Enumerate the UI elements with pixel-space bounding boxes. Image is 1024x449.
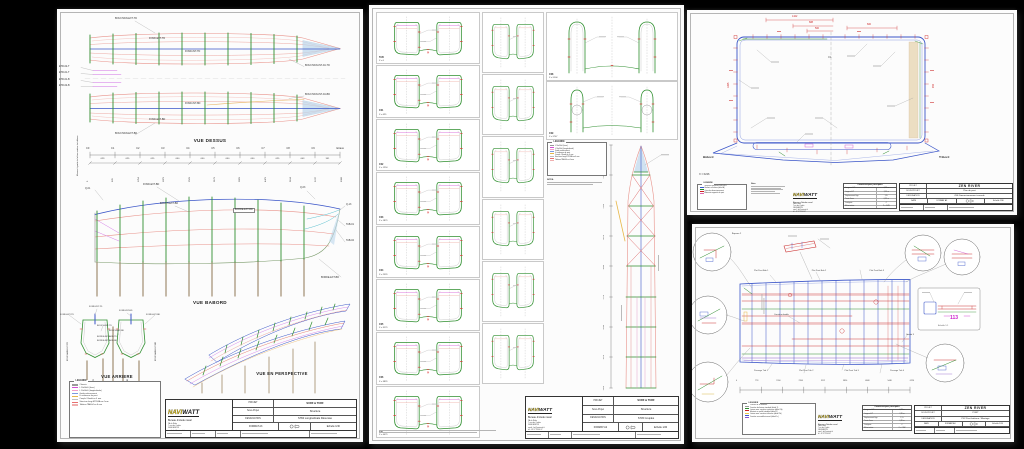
station-label: C9 xyxy=(311,148,314,151)
field-sousprojet-label: SOUS-PROJET xyxy=(900,189,927,193)
centerline-symbol: CL xyxy=(828,56,832,59)
segment-value: 643 xyxy=(290,158,315,160)
legend-row: Tableau TAB-04 en 6 mm xyxy=(70,404,160,407)
legend-color-swatch xyxy=(745,415,750,416)
cumulative-value: 5104 xyxy=(290,166,292,182)
section-name: C01 xyxy=(379,110,383,112)
section-panels-middle xyxy=(482,12,544,385)
view-title-dessus: VUE DESSUS xyxy=(87,138,333,143)
title-block: PROJETZEN RIVER SOUS-PROJETPlan de pont … xyxy=(899,183,1013,211)
caract-value: 2 × 4 kW xyxy=(893,428,911,431)
title-block: NAVIWATT Bureau d'étude naval ZA du Rédo… xyxy=(525,396,679,439)
field-format: FORMAT A3 xyxy=(233,423,279,430)
cumulative-values: 0629125418792529317938294479510457476098 xyxy=(87,166,343,182)
legend-color-swatch xyxy=(72,390,78,391)
section-label: BORDE-INT-ARR-BD xyxy=(97,340,117,342)
segment-values: 629625625650650650650625643351 xyxy=(90,158,340,160)
station-label: C3 xyxy=(161,148,164,151)
naviwatt-block: NAVIWATT Bureau d'étude naval ZA du Rédo… xyxy=(793,183,837,214)
deck-scale-values: 07781556233431123890466854466226 xyxy=(736,381,914,383)
legend-title: LEGENDE xyxy=(552,141,566,143)
caract-label: Largeur H.T xyxy=(863,414,893,417)
babord-label: Bâbord xyxy=(703,156,714,159)
ruler-value: 4479 xyxy=(603,235,605,239)
hull-line-label: FOND-EXT-BD xyxy=(143,184,159,186)
sheet-surf-turf-couples: TAB X = 0 xyxy=(369,5,684,444)
logo-navi: NAVI xyxy=(528,407,539,412)
section-panel: C02 X = 1254 xyxy=(376,119,480,171)
section-name: C09 xyxy=(549,133,553,135)
caract-label: Motorisation xyxy=(844,206,877,209)
hull-line-label: FOND-INT-TD xyxy=(185,51,200,53)
sheet-surf-turf-longitudinale: BOUCHAIN-EXT-TD FOND-EXT-TD FOND-INT-TD … xyxy=(57,9,363,442)
legend-title: LEGENDE xyxy=(74,380,88,382)
section-panel: C03 X = 1879 xyxy=(376,172,480,224)
field-echelle: Echelle 1/30 xyxy=(985,199,1012,203)
caracteristiques-table: Caractéristiques principales Longueur H.… xyxy=(843,183,897,209)
section-drawing xyxy=(377,120,479,170)
field-date-label: DATE xyxy=(915,422,939,426)
legend-color-swatch xyxy=(72,402,78,403)
cumulative-value: 3179 xyxy=(214,166,216,182)
segment-value: 650 xyxy=(240,158,265,160)
legend-color-swatch xyxy=(550,147,555,148)
field-sousprojet-value: Structure xyxy=(274,408,356,415)
deck-plate-label: Plat Pont Bab 1 xyxy=(754,270,768,272)
legend-row-label: Cornière ou modèle inversé (détail 1c) xyxy=(750,417,779,419)
dimension-value: 940 xyxy=(933,76,935,88)
logo-watt: WATT xyxy=(182,410,199,416)
field-sousprojet-label: SOUS-PROJET xyxy=(915,411,942,415)
deck-plate-labels-bottom: Passage Trib 1Plat Pont Trib 2Plat Pont … xyxy=(754,370,904,372)
naviwatt-block: NAVIWATT Bureau d'étude naval ZA du Rédo… xyxy=(526,397,583,431)
hull-line-label: FOND-INT-BD xyxy=(185,103,200,105)
legend-couples: LEGENDE Chassis L 50x50x5 (lisse) L 50x5… xyxy=(547,142,607,176)
deck-plate-label: Passage Trib 1 xyxy=(754,370,768,372)
section-drawing xyxy=(377,280,479,330)
section-label: BOUCHAIN-EXT-BD xyxy=(155,325,157,361)
station-label: C6 xyxy=(236,148,239,151)
segment-value: 650 xyxy=(165,158,190,160)
projection-icon xyxy=(963,422,987,426)
caract-value: 0,35 m xyxy=(893,421,911,424)
field-echelle: Echelle 1/20 xyxy=(643,423,678,431)
title-block: PROJETZEN RIVER SOUS-PROJETPONT DESIGNAT… xyxy=(914,405,1010,434)
naviwatt-logo: NAVIWATT xyxy=(818,415,842,421)
section-drawing xyxy=(483,262,543,321)
segment-value: 625 xyxy=(265,158,290,160)
ruler-value: 5104 xyxy=(603,204,605,208)
field-projet-value: ZEN RIVER xyxy=(942,406,1009,410)
drawing-sheets-canvas: BOUCHAIN-EXT-TD FOND-EXT-TD FOND-INT-TD … xyxy=(0,0,1024,449)
sheet-zen-river-plan-de-pont: 1422 688 500 600 1265 940 CL Bâbord Trib… xyxy=(687,10,1017,215)
caract-value: 2,55 m xyxy=(893,414,911,417)
legend-color-swatch xyxy=(550,149,555,150)
hull-line-label: FOND-EXT-TD xyxy=(149,38,165,40)
field-projet-value: SURF & TURF xyxy=(614,397,678,405)
section-drawing xyxy=(483,13,543,72)
section-panels-left: TAB X = 0 xyxy=(376,12,480,439)
legend-color-swatch xyxy=(550,158,555,159)
tribord-label: Tribord xyxy=(939,156,949,159)
field-projet-value: SURF & TURF xyxy=(274,400,356,407)
stringer-label: ETR-01-B xyxy=(59,79,70,81)
address-lines: ZA du Rédo7 rue des Cadets56640 ARZONema… xyxy=(818,426,858,436)
section-label: FOND-EXT-TD xyxy=(60,314,74,316)
section-panel-c08: C08 X = 5104 xyxy=(546,12,678,81)
cumulative-value: 6098 xyxy=(341,166,343,182)
legend-color-swatch xyxy=(550,153,555,154)
view-title-perspective: VUE EN PERSPECTIVE xyxy=(207,371,357,376)
section-panel xyxy=(482,12,544,73)
legend-row-label: Structure longi ETR-BA en 4 mm xyxy=(80,401,109,403)
cumulative-value: 1254 xyxy=(138,166,140,182)
equerre-label: Équerre 2 xyxy=(732,233,741,235)
field-sousprojet-value: Structure xyxy=(614,406,678,414)
ruler-value: 1879 xyxy=(603,355,605,359)
logo-watt: WATT xyxy=(804,192,817,197)
revision-strip xyxy=(915,427,1009,433)
field-echelle: Echelle 1/24 xyxy=(986,422,1009,426)
section-station: X = 629 xyxy=(379,114,386,116)
field-designation-label: DESIGNATION xyxy=(900,194,927,198)
ruler-value: 1254 xyxy=(603,386,605,390)
corniere-label: Cornière double xyxy=(774,314,789,316)
logo-navi: NAVI xyxy=(818,414,829,419)
transom-label: TAB-01 xyxy=(346,224,354,226)
nota-block: Nota xyxy=(751,183,785,194)
stringer-label: ETR-02-B xyxy=(59,85,70,87)
caract-value: 2,55 m xyxy=(877,192,896,195)
field-format: FORMAT A3 xyxy=(939,422,963,426)
section-name: C06 xyxy=(379,377,383,379)
legend-rows: Chassis L 50x50x5 (lisse) L 50x50x5 (lon… xyxy=(70,384,160,407)
section-drawing xyxy=(483,75,543,134)
field-projet-label: PROJET xyxy=(233,400,274,407)
hull-line-label: FOND-EXT-BD xyxy=(149,119,165,121)
caracteristiques-row: Motorisation 2 × 4 kW xyxy=(863,428,911,431)
field-projet-label: PROJET xyxy=(583,397,614,405)
field-format: FORMAT A2 xyxy=(583,423,619,431)
caracteristiques-row: Motorisation 2 × 4 kW xyxy=(844,206,896,209)
legend-color-swatch xyxy=(550,145,555,146)
section-station: X = 3179 xyxy=(379,327,387,329)
legend-row-label: Éléments rapportés du pont xyxy=(705,193,725,195)
cumulative-value: 1879 xyxy=(163,166,165,182)
section-label: BOUCH-INT-BD xyxy=(109,330,124,332)
section-name: C03 xyxy=(379,217,383,219)
legend-color-swatch xyxy=(700,191,704,192)
legend-color-swatch xyxy=(700,189,704,190)
bureau-label: Bureau d'étude naval xyxy=(168,420,230,423)
ruler-value: 2529 xyxy=(603,325,605,329)
section-station: X = 1254 xyxy=(379,167,387,169)
section-panel xyxy=(482,323,544,384)
station-reference: X = 6226 xyxy=(699,174,709,177)
section-station: X = 5747 xyxy=(549,136,557,138)
legend-row: Tableau TAB-04 en 6 mm xyxy=(548,159,606,161)
legend-pont: LEGENDE Chassis de la structure Cornière… xyxy=(742,403,816,435)
cumulative-value: 5747 xyxy=(315,166,317,182)
cumulative-value: 629 xyxy=(112,166,114,182)
deck-plate-labels-top: Plat Pont Bab 1Plat Pont Bab 2Plat Pont … xyxy=(754,270,884,272)
section-station: X = 1879 xyxy=(379,220,387,222)
naviwatt-block: NAVIWATT Bureau d'étude naval ZA du Rédo… xyxy=(818,405,858,436)
title-block: NAVIWATT Bureau d'étude naval ZA du Rédo… xyxy=(165,399,357,438)
legend-row-label: Tableau TAB-04 en 6 mm xyxy=(80,404,103,406)
legend-row-label: Tableau TAB-04 en 6 mm xyxy=(555,160,574,162)
caracteristiques-rows: Longueur H.T 6,23 m Largeur H.T 2,55 m D… xyxy=(863,410,911,430)
transom-label: TAB-02 xyxy=(346,240,354,242)
legend-row: Cornière ou modèle inversé (détail 1c) xyxy=(743,416,815,418)
dimension-value: 600 xyxy=(867,24,871,26)
stringer-label: ETR-02-T xyxy=(59,66,70,68)
section-drawing xyxy=(547,82,677,139)
ruler-value: 3179 xyxy=(603,295,605,299)
station-label: C5 xyxy=(211,148,214,151)
section-drawing xyxy=(547,13,677,80)
legend-rows: Structure aluminium 5083 H111 Renforts e… xyxy=(698,186,746,195)
projection-icon xyxy=(279,423,310,430)
dimension-value: 500 xyxy=(815,28,819,30)
section-panel: C04 X = 2529 xyxy=(376,226,480,278)
section-label: FOND-INT-BD xyxy=(119,310,132,312)
scale-value: 3890 xyxy=(843,381,847,383)
cumulative-value: 0 xyxy=(87,166,89,182)
section-drawing xyxy=(377,66,479,116)
nota-title: NOTA : xyxy=(547,179,605,181)
section-panel xyxy=(482,261,544,322)
field-designation-label: DESIGNATION xyxy=(233,416,274,423)
cumulative-value: 4479 xyxy=(265,166,267,182)
dimension-value: 1422 xyxy=(792,16,797,18)
naviwatt-logo: NAVIWATT xyxy=(168,410,199,417)
section-panel-c09: C09 X = 5747 xyxy=(546,81,678,140)
legend-color-swatch xyxy=(745,417,750,418)
section-station: X = 0 xyxy=(379,60,384,62)
logo-watt: WATT xyxy=(539,407,552,412)
section-drawing xyxy=(483,200,543,259)
revision-strip xyxy=(900,204,1012,210)
address-line: tél : 02 97 53 44 67 xyxy=(818,434,858,436)
station-label: C1 xyxy=(111,148,114,151)
legend-color-swatch xyxy=(72,393,78,394)
scale-axis-note: Mesure à partir de la face arrière du ta… xyxy=(77,150,79,176)
section-drawing xyxy=(483,137,543,196)
revision-strip xyxy=(526,431,678,438)
legend-color-swatch xyxy=(745,413,750,414)
section-drawing xyxy=(377,333,479,383)
section-drawing xyxy=(483,324,543,383)
segment-value: 625 xyxy=(140,158,165,160)
goulot-label: Goulot 3 xyxy=(906,334,914,336)
dimension-value: 688 xyxy=(809,22,813,24)
hull-line-label: BORDE-EXT-BD xyxy=(233,208,255,213)
naviwatt-block: NAVIWATT Bureau d'étude naval ZA du Rédo… xyxy=(166,400,233,430)
section-station: X = 2529 xyxy=(379,274,387,276)
legend-color-swatch xyxy=(700,187,704,188)
field-designation-label: DESIGNATION xyxy=(915,417,942,421)
address-lines: ZA du Rédo7 rue des Cadets56640 ARZONema… xyxy=(793,204,837,214)
legend-color-swatch xyxy=(72,384,78,385)
field-designation-value: P02 Pont Intérieur / Montage xyxy=(942,417,1009,421)
caract-value: 0,35 m xyxy=(877,199,896,202)
section-drawing xyxy=(377,227,479,277)
field-sousprojet-value: PONT xyxy=(942,411,1009,415)
deck-plate-label: Plat Pont Trib 3 xyxy=(845,370,859,372)
field-format: FORMAT A3 xyxy=(928,199,956,203)
scale-value: 1556 xyxy=(776,381,780,383)
frame-label: Q-13 xyxy=(346,204,351,206)
address-lines: ZA du Rédo7 rue des Cadets56640 ARZONema… xyxy=(168,423,230,430)
field-date-label: DATE xyxy=(900,199,928,203)
sheet-zen-river-pont: Plat Pont Bab 1Plat Pont Bab 2Plat Pont … xyxy=(692,224,1014,442)
legend-color-swatch xyxy=(72,399,78,400)
field-projet-label: PROJET xyxy=(900,184,927,188)
caract-label: Tirant d'eau xyxy=(863,421,893,424)
legend-row-label: U raidisseur de pont xyxy=(80,395,98,397)
station-label: Etrave xyxy=(336,148,344,151)
legend-title: LEGENDE xyxy=(702,183,714,185)
hull-line-label: BORDE-EXT-BD xyxy=(321,277,339,279)
segment-value: 650 xyxy=(190,158,215,160)
station-labels: C0C1C2C3C4C5C6C7C8C9Etrave xyxy=(86,148,344,151)
field-designation-value: Z06 Dimensionnement console xyxy=(927,194,1012,198)
scale-value: 4668 xyxy=(865,381,869,383)
address-lines: ZA du Rédo7 rue des Cadets56640 ARZONema… xyxy=(528,420,580,431)
legend-color-swatch xyxy=(550,156,555,157)
section-name: TAB xyxy=(379,57,384,59)
legend-color-swatch xyxy=(550,160,555,161)
field-projet-label: PROJET xyxy=(915,406,942,410)
segment-value: 650 xyxy=(215,158,240,160)
projection-icon xyxy=(957,199,985,203)
ruler-value: 3829 xyxy=(603,265,605,269)
section-panel: C05 X = 3179 xyxy=(376,279,480,331)
deck-plate-label: Plat Pont Trib 2 xyxy=(799,370,813,372)
frame-label: Q-03 xyxy=(300,187,305,189)
nota-title: Nota xyxy=(751,183,785,185)
cumulative-value: 2529 xyxy=(189,166,191,182)
section-panel xyxy=(482,136,544,197)
legend-rows: Chassis L 50x50x5 (lisse) L 50x50x5 (lon… xyxy=(548,144,606,162)
segment-value: 625 xyxy=(115,158,140,160)
legend-color-swatch xyxy=(550,151,555,152)
section-label: FOND-EXT-BD xyxy=(146,314,160,316)
projection-icon xyxy=(619,423,643,431)
nota-block: NOTA : xyxy=(547,179,605,186)
section-name: C02 xyxy=(379,164,383,166)
section-label: BOUCH-INT-TD xyxy=(97,325,112,327)
station-label: C7 xyxy=(261,148,264,151)
scale-value: 0 xyxy=(736,381,737,383)
caract-value: 2 × 4 kW xyxy=(877,206,896,209)
field-designation-value: S745 Couples xyxy=(614,415,678,423)
legend-row-label: L 50x50x5 (longitudinale) xyxy=(80,390,102,392)
station-label: C8 xyxy=(286,148,289,151)
section-panel xyxy=(482,74,544,135)
naviwatt-logo: NAVIWATT xyxy=(793,193,817,199)
field-designation-value: S784 Longitudinale Résumée xyxy=(274,416,356,423)
legend-color-swatch xyxy=(72,387,78,388)
view-title-arriere: VUE ARRIERE xyxy=(65,374,169,379)
legend-deck: LEGENDE Structure aluminium 5083 H111 Re… xyxy=(697,184,747,210)
section-station: X = 4479 xyxy=(379,434,387,436)
caracteristiques-rows: Longueur H.T 6,23 m Largeur H.T 2,55 m D… xyxy=(844,188,896,208)
legend-row-label: L 50x50x5 (lisse) xyxy=(80,387,95,389)
section-name: C05 xyxy=(379,324,383,326)
bureau-label: Bureau d'étude naval xyxy=(528,417,580,420)
section-name: C04 xyxy=(379,270,383,272)
detail-dimension-113: 113 xyxy=(950,316,958,321)
legend-color-swatch xyxy=(72,404,78,405)
section-label: BOUCHAIN-EXT-TD xyxy=(67,325,69,361)
section-panel: C01 X = 629 xyxy=(376,65,480,117)
hull-line-label: BOUCH-EXT-BD xyxy=(160,203,178,205)
hull-line-label: BOUCHAIN-INT-AV-TD xyxy=(305,65,330,67)
logo-watt: WATT xyxy=(829,414,842,419)
segment-value: 629 xyxy=(90,158,115,160)
dimension-value: 1265 xyxy=(728,76,730,88)
address-line: tél : 02 97 53 44 67 xyxy=(793,212,837,214)
naviwatt-logo: NAVIWATT xyxy=(528,408,552,414)
scale-value: 6226 xyxy=(910,381,914,383)
legend-rows: Chassis de la structure Cornière de liai… xyxy=(743,405,815,419)
field-designation-label: DESIGNATION xyxy=(583,415,614,423)
legend-color-swatch xyxy=(72,396,78,397)
section-panel: C06 X = 3829 xyxy=(376,332,480,384)
cumulative-value: 3829 xyxy=(239,166,241,182)
field-sousprojet-label: Sous-Projet xyxy=(233,408,274,415)
legend-row-label: Chassis xyxy=(80,384,87,386)
section-drawing xyxy=(377,13,479,63)
legend-row-label: Couple / Bordé en 4 mm xyxy=(80,398,102,400)
caracteristiques-table: Caractéristiques principales Longueur H.… xyxy=(862,405,912,431)
station-label: C2 xyxy=(136,148,139,151)
frame-label: Q-01 xyxy=(85,188,90,190)
legend-color-swatch xyxy=(745,408,750,409)
deck-plate-label: Plat Pont Bab 3 xyxy=(870,270,884,272)
scale-value: 2334 xyxy=(799,381,803,383)
legend-structure: LEGENDE Chassis L 50x50x5 (lisse) L 50x5… xyxy=(69,381,161,438)
section-panel xyxy=(482,199,544,260)
caract-label: Motorisation xyxy=(863,428,893,431)
caract-label: Tirant d'eau xyxy=(844,199,877,202)
section-label: FOND-INT-TD xyxy=(89,306,102,308)
hull-line-label: BOUCHAIN-EXT-BD xyxy=(115,133,137,135)
scale-value: 3112 xyxy=(821,381,825,383)
scale-value: 5446 xyxy=(888,381,892,383)
field-echelle: Echelle 1/30 xyxy=(311,423,356,430)
field-sousprojet-value: Plan de pont xyxy=(927,189,1012,193)
legend-color-swatch xyxy=(745,410,750,411)
hull-line-label: BOUCHAIN-EXT-TD xyxy=(115,18,137,20)
scale-value: 778 xyxy=(755,381,758,383)
station-label: C0 xyxy=(86,148,89,151)
section-name: C08 xyxy=(549,74,553,76)
section-station: X = 5104 xyxy=(549,77,557,79)
logo-navi: NAVI xyxy=(793,192,804,197)
legal-text xyxy=(379,429,509,433)
legend-color-swatch xyxy=(745,406,750,407)
legend-title: LEGENDE xyxy=(747,402,760,404)
legend-color-swatch xyxy=(700,193,704,194)
segment-value: 351 xyxy=(315,158,340,160)
logo-navi: NAVI xyxy=(168,410,182,416)
section-drawing xyxy=(377,173,479,223)
detail-scale-label: Echelle 1:1 xyxy=(938,325,948,327)
stringer-label: ETR-01-T xyxy=(59,72,70,74)
